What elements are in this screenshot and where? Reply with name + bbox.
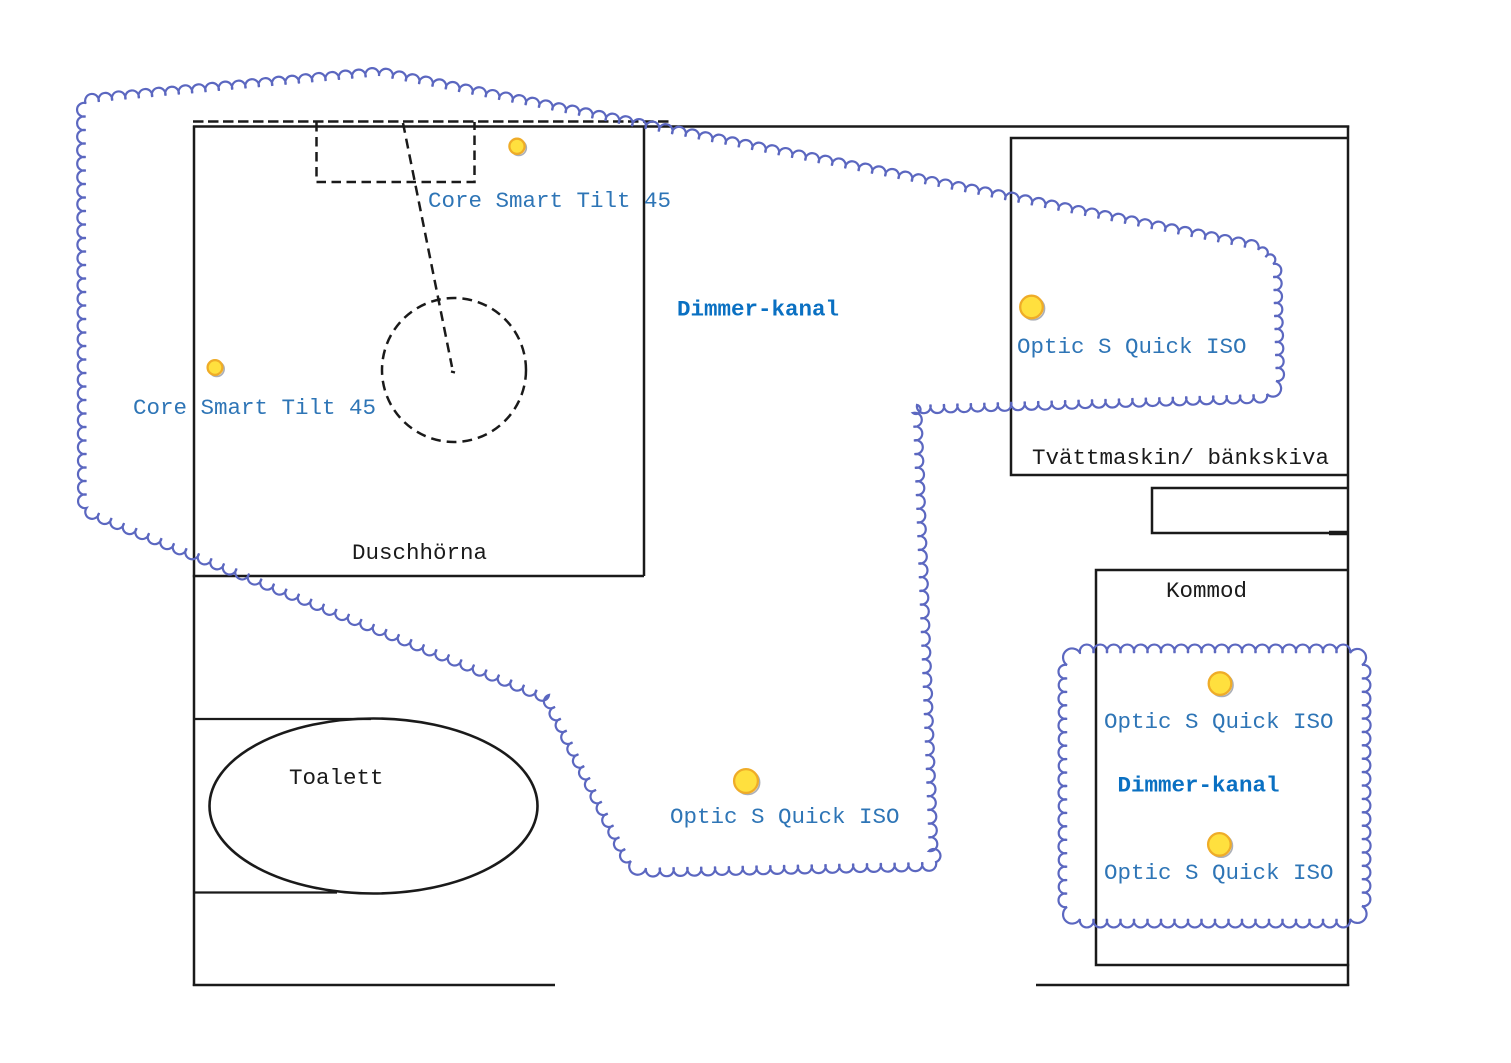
svg-text:Core Smart Tilt 45: Core Smart Tilt 45 — [133, 395, 376, 421]
svg-text:Core Smart Tilt 45: Core Smart Tilt 45 — [428, 188, 671, 214]
svg-text:Toalett: Toalett — [289, 765, 384, 791]
svg-text:Optic S Quick ISO: Optic S Quick ISO — [1104, 709, 1334, 735]
svg-text:Optic S Quick ISO: Optic S Quick ISO — [670, 804, 900, 830]
svg-text:Dimmer-kanal: Dimmer-kanal — [677, 297, 839, 323]
svg-text:Dimmer-kanal: Dimmer-kanal — [1118, 773, 1280, 799]
svg-text:Optic S Quick ISO: Optic S Quick ISO — [1104, 860, 1334, 886]
svg-text:Optic S Quick ISO: Optic S Quick ISO — [1017, 334, 1247, 360]
svg-text:Tvättmaskin/ bänkskiva: Tvättmaskin/ bänkskiva — [1032, 445, 1329, 471]
svg-text:Duschhörna: Duschhörna — [352, 540, 487, 566]
svg-text:Kommod: Kommod — [1166, 578, 1247, 604]
